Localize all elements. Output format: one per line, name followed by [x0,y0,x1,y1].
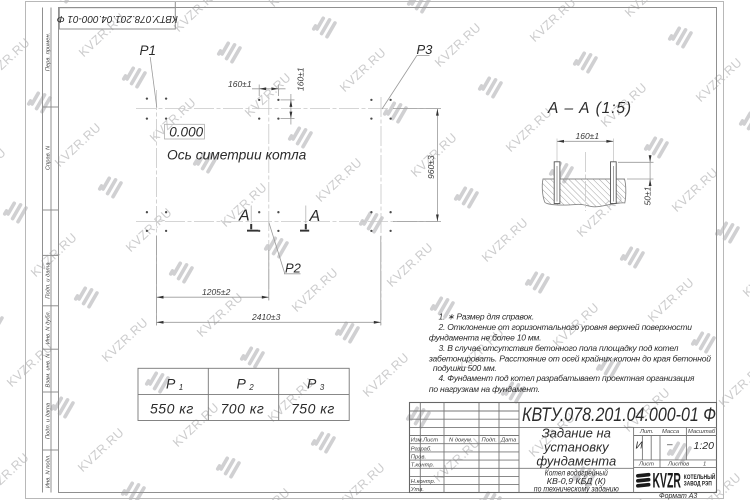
svg-text:P2: P2 [285,260,302,275]
svg-text:Изм.Лист: Изм.Лист [411,437,438,443]
svg-text:KVZR.RU: KVZR.RU [0,35,33,85]
svg-text:Масштаб: Масштаб [688,429,716,435]
svg-text:KVZR.RU: KVZR.RU [597,495,649,500]
svg-text:N докум.: N докум. [449,437,472,443]
svg-text:Утв.: Утв. [410,487,424,493]
svg-text:KVZR.RU: KVZR.RU [527,0,579,45]
svg-text:Задание на: Задание на [542,426,611,441]
svg-text:KVZR.RU: KVZR.RU [242,70,294,120]
svg-text:Инв. N подл.: Инв. N подл. [46,454,52,488]
svg-text:KVZR.RU: KVZR.RU [99,315,151,365]
svg-text:KVZR.RU: KVZR.RU [0,450,32,500]
svg-text:KVZR.RU: KVZR.RU [693,55,745,105]
svg-text:Подп. и дата: Подп. и дата [46,262,52,299]
svg-text:KVZR.RU: KVZR.RU [360,350,412,400]
svg-text:750 кг: 750 кг [291,401,335,417]
svg-text:установку: установку [543,440,610,455]
svg-text:ЗАВОД РЭП: ЗАВОД РЭП [684,482,712,488]
svg-text:фундамента не более 10 мм.: фундамента не более 10 мм. [429,333,541,343]
svg-text:КВТУ.078.201.04.000-01 Ф: КВТУ.078.201.04.000-01 Ф [57,13,178,24]
svg-text:Листов: Листов [667,461,689,467]
svg-text:P 3: P 3 [307,376,325,393]
svg-text:KVZR.RU: KVZR.RU [0,145,9,195]
svg-text:Справ. N: Справ. N [46,145,52,170]
svg-text:KVZR.RU: KVZR.RU [337,45,389,95]
svg-text:KVZR.RU: KVZR.RU [194,290,246,340]
svg-text:P 1: P 1 [166,376,183,393]
svg-text:1:20: 1:20 [694,440,715,452]
svg-text:0.000: 0.000 [169,125,203,140]
svg-text:P3: P3 [417,42,434,57]
svg-text:Лит.: Лит. [639,429,654,435]
svg-text:4. Фундамент под котел разраба: 4. Фундамент под котел разрабатывает про… [439,373,695,383]
svg-text:KVZR: KVZR [653,470,682,493]
svg-text:фундамента: фундамента [536,453,616,468]
svg-text:по техническому заданию: по техническому заданию [534,485,619,494]
svg-text:И: И [636,441,644,452]
svg-text:Инв. N дубл.: Инв. N дубл. [46,311,52,345]
svg-text:Н.контр.: Н.контр. [411,479,436,485]
svg-text:KVZR.RU: KVZR.RU [645,275,697,325]
svg-text:KVZR.RU: KVZR.RU [740,250,750,300]
svg-text:1: 1 [703,461,706,467]
svg-text:KVZR.RU: KVZR.RU [432,20,484,70]
svg-text:KVZR.RU: KVZR.RU [669,165,721,215]
svg-text:1205±2: 1205±2 [202,287,231,297]
svg-text:KVZR.RU: KVZR.RU [75,425,127,475]
svg-text:КОТЕЛЬНЫЙ: КОТЕЛЬНЫЙ [684,473,716,481]
svg-text:160±1: 160±1 [228,79,252,89]
svg-text:KVZR.RU: KVZR.RU [171,0,223,35]
svg-text:2410±3: 2410±3 [251,312,281,322]
svg-text:P 2: P 2 [237,376,255,393]
svg-text:Т.контр.: Т.контр. [411,463,434,469]
svg-text:KVZR.RU: KVZR.RU [52,120,104,170]
svg-text:KVZR.RU: KVZR.RU [479,215,531,265]
svg-text:3. В случае отсутствия бетонно: 3. В случае отсутствия бетонного пола пл… [439,343,679,353]
svg-text:КВТУ.078.201.04.000-01 Ф: КВТУ.078.201.04.000-01 Ф [522,404,716,426]
svg-text:KVZR.RU: KVZR.RU [622,0,674,20]
svg-text:Разраб.: Разраб. [411,446,432,452]
svg-text:А: А [309,208,321,225]
svg-text:Подп. и дата: Подп. и дата [46,402,52,439]
svg-text:–: – [666,440,673,451]
svg-text:P1: P1 [140,43,157,58]
svg-text:700 кг: 700 кг [221,401,265,417]
svg-text:Ось симетрии котла: Ось симетрии котла [167,147,307,162]
svg-text:KVZR.RU: KVZR.RU [313,155,365,205]
svg-text:KVZR.RU: KVZR.RU [336,460,388,500]
svg-text:960±3: 960±3 [426,155,436,179]
svg-text:Дата: Дата [500,437,517,443]
svg-text:А: А [238,208,250,225]
svg-text:160±1: 160±1 [296,67,306,91]
svg-text:Перв. примен.: Перв. примен. [46,33,52,72]
svg-text:по нагрузкам на фундамент.: по нагрузкам на фундамент. [429,384,540,394]
svg-text:Пров.: Пров. [411,455,426,461]
svg-text:А – А (1:5): А – А (1:5) [547,100,632,117]
svg-text:Взам. инв. N: Взам. инв. N [46,353,52,388]
svg-text:160±1: 160±1 [576,131,600,141]
svg-text:550 кг: 550 кг [150,401,194,417]
svg-text:50±1: 50±1 [643,186,653,205]
svg-text:подушки 500 мм.: подушки 500 мм. [433,363,497,373]
svg-text:1. ∗ Размер для справок.: 1. ∗ Размер для справок. [439,312,535,322]
svg-text:KVZR.RU: KVZR.RU [384,240,436,290]
svg-text:Формат А3: Формат А3 [659,493,697,500]
svg-text:2. Отклонение от горизонтально: 2. Отклонение от горизонтального уровня … [438,322,693,332]
svg-text:Подп.: Подп. [482,437,497,443]
svg-text:Котел водогрейный: Котел водогрейный [545,468,608,477]
svg-text:Масса: Масса [662,429,680,435]
svg-text:KVZR.RU: KVZR.RU [716,360,750,410]
svg-text:Лист: Лист [638,461,654,467]
